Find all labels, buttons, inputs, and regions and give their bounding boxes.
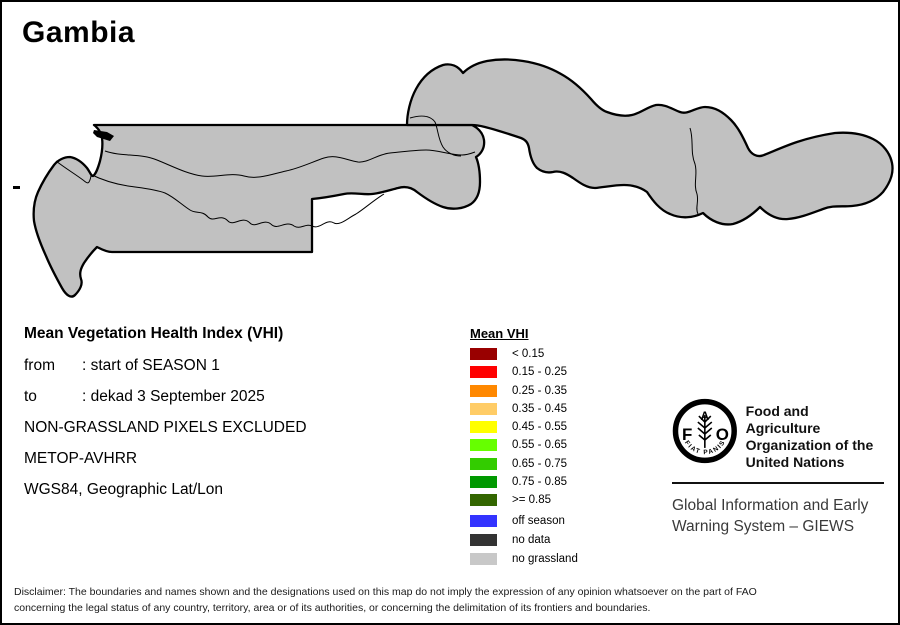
legend-item: off season [470, 515, 578, 527]
org-line: Organization of the [746, 437, 886, 454]
country-borders [34, 60, 893, 297]
brand-divider [672, 482, 884, 484]
legend-label: 0.45 - 0.55 [512, 421, 567, 433]
info-row-value: : start of SEASON 1 [82, 357, 220, 375]
info-row-label: to [24, 388, 82, 406]
legend-swatch [470, 385, 497, 397]
legend-swatch [470, 439, 497, 451]
legend-label: 0.25 - 0.35 [512, 385, 567, 397]
legend-title: Mean VHI [470, 326, 578, 341]
disclaimer: Disclaimer: The boundaries and names sho… [14, 584, 894, 616]
legend-label: 0.75 - 0.85 [512, 476, 567, 488]
fao-brand: F A O FIAT PANIS Food and AgricultureOrg… [672, 398, 886, 471]
coastal-islet-mark [13, 186, 20, 189]
disclaimer-line: concerning the legal status of any count… [14, 600, 894, 616]
org-line: United Nations [746, 454, 886, 471]
legend-swatch [470, 494, 497, 506]
legend-label: no grassland [512, 553, 578, 565]
legend-classes: < 0.150.15 - 0.250.25 - 0.350.35 - 0.450… [470, 348, 578, 506]
legend-swatch [470, 476, 497, 488]
legend-item: no grassland [470, 553, 578, 565]
legend-item: 0.45 - 0.55 [470, 421, 578, 433]
legend-item: no data [470, 534, 578, 546]
legend-swatch [470, 458, 497, 470]
legend-swatch [470, 421, 497, 433]
legend-swatch [470, 366, 497, 378]
info-rows: from: start of SEASON 1to: dekad 3 Septe… [24, 357, 307, 406]
legend-item: < 0.15 [470, 348, 578, 360]
legend-item: 0.15 - 0.25 [470, 366, 578, 378]
giews-line: Global Information and Early [672, 495, 886, 516]
info-row-label: from [24, 357, 82, 375]
vhi-pixel [88, 268, 93, 273]
legend-label: 0.15 - 0.25 [512, 366, 567, 378]
legend-item: 0.55 - 0.65 [470, 439, 578, 451]
legend: Mean VHI < 0.150.15 - 0.250.25 - 0.350.3… [470, 326, 578, 572]
info-row: from: start of SEASON 1 [24, 357, 307, 375]
legend-label: >= 0.85 [512, 494, 551, 506]
legend-extra: off seasonno datano grassland [470, 515, 578, 565]
gambia-map [2, 2, 900, 322]
legend-swatch [470, 515, 497, 527]
legend-item: 0.25 - 0.35 [470, 385, 578, 397]
giews-line: Warning System – GIEWS [672, 516, 886, 537]
info-heading: Mean Vegetation Health Index (VHI) [24, 325, 307, 343]
legend-swatch [470, 553, 497, 565]
legend-item: >= 0.85 [470, 494, 578, 506]
fao-org-name: Food and AgricultureOrganization of theU… [746, 403, 886, 471]
org-line: Food and Agriculture [746, 403, 886, 437]
legend-label: off season [512, 515, 565, 527]
info-line: WGS84, Geographic Lat/Lon [24, 481, 307, 499]
legend-item: 0.75 - 0.85 [470, 476, 578, 488]
info-row-value: : dekad 3 September 2025 [82, 388, 265, 406]
legend-label: 0.65 - 0.75 [512, 458, 567, 470]
map-info-block: Mean Vegetation Health Index (VHI) from:… [24, 325, 307, 512]
branding-block: F A O FIAT PANIS Food and AgricultureOrg… [672, 398, 886, 537]
giews-name: Global Information and EarlyWarning Syst… [672, 495, 886, 537]
info-lines: NON-GRASSLAND PIXELS EXCLUDEDMETOP-AVHRR… [24, 419, 307, 499]
info-line: METOP-AVHRR [24, 450, 307, 468]
legend-item: 0.65 - 0.75 [470, 458, 578, 470]
legend-swatch [470, 348, 497, 360]
disclaimer-line: Disclaimer: The boundaries and names sho… [14, 584, 894, 600]
legend-label: no data [512, 534, 550, 546]
info-line: NON-GRASSLAND PIXELS EXCLUDED [24, 419, 307, 437]
fao-logo: F A O FIAT PANIS [672, 398, 738, 464]
legend-item: 0.35 - 0.45 [470, 403, 578, 415]
legend-label: 0.35 - 0.45 [512, 403, 567, 415]
info-row: to: dekad 3 September 2025 [24, 388, 307, 406]
map-sheet: Gambia Mean Vegetation H [0, 0, 900, 625]
legend-label: 0.55 - 0.65 [512, 439, 567, 451]
legend-swatch [470, 403, 497, 415]
legend-swatch [470, 534, 497, 546]
vhi-pixel [98, 260, 103, 265]
legend-label: < 0.15 [512, 348, 544, 360]
